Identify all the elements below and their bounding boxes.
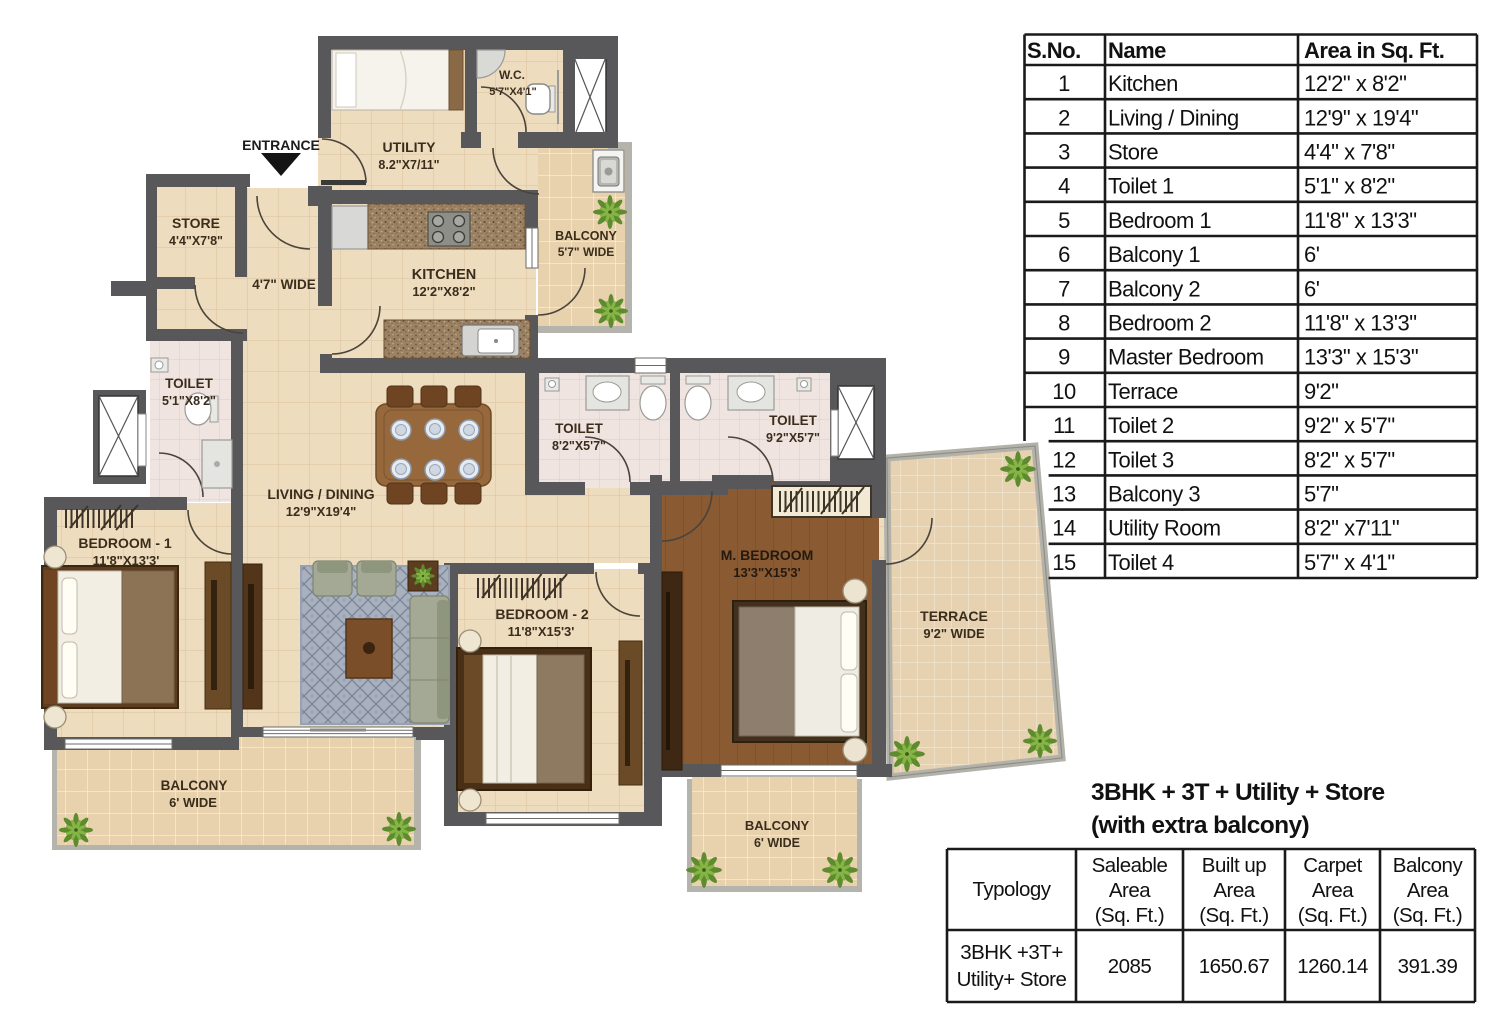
svg-text:11: 11 <box>1053 413 1075 438</box>
svg-text:Balcony 2: Balcony 2 <box>1108 276 1200 301</box>
svg-text:Toilet 2: Toilet 2 <box>1108 413 1174 438</box>
svg-text:9'2" WIDE: 9'2" WIDE <box>923 626 985 641</box>
svg-text:(Sq. Ft.): (Sq. Ft.) <box>1199 904 1269 927</box>
svg-text:STORE: STORE <box>172 215 220 231</box>
svg-text:UTILITY: UTILITY <box>383 139 437 155</box>
svg-text:13: 13 <box>1052 482 1076 507</box>
svg-text:1650.67: 1650.67 <box>1199 955 1270 978</box>
svg-text:6': 6' <box>1304 276 1320 301</box>
svg-text:(with extra balcony): (with extra balcony) <box>1091 812 1309 839</box>
svg-text:9: 9 <box>1058 345 1070 370</box>
svg-text:9'2" x 5'7": 9'2" x 5'7" <box>1304 413 1395 438</box>
svg-text:12'2"X8'2": 12'2"X8'2" <box>412 284 475 299</box>
svg-text:Carpet: Carpet <box>1303 854 1362 877</box>
svg-text:6': 6' <box>1304 242 1320 267</box>
svg-text:Kitchen: Kitchen <box>1108 71 1178 96</box>
svg-text:Master Bedroom: Master Bedroom <box>1108 345 1264 370</box>
svg-text:5'1"X8'2": 5'1"X8'2" <box>162 394 216 408</box>
svg-text:(Sq. Ft.): (Sq. Ft.) <box>1095 904 1165 927</box>
svg-text:10: 10 <box>1052 379 1076 404</box>
svg-text:BALCONY: BALCONY <box>745 818 810 833</box>
svg-text:4: 4 <box>1058 174 1070 199</box>
svg-text:Balcony 1: Balcony 1 <box>1108 242 1200 267</box>
svg-text:7: 7 <box>1058 276 1070 301</box>
svg-text:Terrace: Terrace <box>1108 379 1178 404</box>
svg-text:9'2": 9'2" <box>1304 379 1338 404</box>
svg-text:Typology: Typology <box>972 878 1051 901</box>
svg-text:6' WIDE: 6' WIDE <box>754 836 800 850</box>
svg-text:(Sq. Ft.): (Sq. Ft.) <box>1393 904 1463 927</box>
svg-text:9'2"X5'7": 9'2"X5'7" <box>766 431 820 445</box>
svg-text:11'8"X15'3': 11'8"X15'3' <box>508 624 575 639</box>
svg-text:BALCONY: BALCONY <box>161 778 228 793</box>
svg-text:11'8" x 13'3": 11'8" x 13'3" <box>1304 208 1417 233</box>
svg-text:M. BEDROOM: M. BEDROOM <box>721 547 814 563</box>
svg-text:12'9"X19'4": 12'9"X19'4" <box>286 504 357 519</box>
svg-text:2085: 2085 <box>1108 955 1152 978</box>
svg-text:5'7" WIDE: 5'7" WIDE <box>558 245 615 259</box>
svg-text:Toilet 3: Toilet 3 <box>1108 447 1174 472</box>
svg-text:Area in Sq. Ft.: Area in Sq. Ft. <box>1304 38 1444 63</box>
svg-text:13'3"X15'3': 13'3"X15'3' <box>733 565 801 580</box>
svg-text:14: 14 <box>1052 516 1076 541</box>
svg-text:Area: Area <box>1312 879 1354 902</box>
svg-text:6' WIDE: 6' WIDE <box>169 795 217 810</box>
svg-text:Area: Area <box>1407 879 1449 902</box>
svg-text:8: 8 <box>1058 311 1070 336</box>
svg-text:5'7" x 4'1": 5'7" x 4'1" <box>1304 550 1395 575</box>
svg-text:TOILET: TOILET <box>769 413 818 428</box>
svg-text:S.No.: S.No. <box>1027 38 1081 63</box>
svg-text:13'3" x 15'3": 13'3" x 15'3" <box>1304 345 1418 370</box>
svg-text:Balcony 3: Balcony 3 <box>1108 482 1200 507</box>
svg-text:TERRACE: TERRACE <box>920 608 988 624</box>
svg-text:2: 2 <box>1058 105 1070 130</box>
svg-text:KITCHEN: KITCHEN <box>412 267 476 283</box>
svg-text:TOILET: TOILET <box>165 376 214 391</box>
svg-text:Living / Dining: Living / Dining <box>1108 105 1239 130</box>
svg-text:15: 15 <box>1052 550 1076 575</box>
svg-text:BALCONY: BALCONY <box>555 229 617 243</box>
svg-text:8.2"X7/11": 8.2"X7/11" <box>378 158 439 172</box>
svg-text:Area: Area <box>1109 879 1151 902</box>
svg-text:1260.14: 1260.14 <box>1297 955 1368 978</box>
svg-text:4'4" x 7'8": 4'4" x 7'8" <box>1304 140 1395 165</box>
svg-text:BEDROOM - 1: BEDROOM - 1 <box>78 535 172 551</box>
svg-text:Balcony: Balcony <box>1393 854 1464 877</box>
svg-text:Store: Store <box>1108 140 1158 165</box>
svg-text:ENTRANCE: ENTRANCE <box>242 137 320 153</box>
svg-text:Toilet 4: Toilet 4 <box>1108 550 1174 575</box>
svg-text:6: 6 <box>1058 242 1070 267</box>
svg-text:Utility Room: Utility Room <box>1108 516 1221 541</box>
svg-text:Utility+ Store: Utility+ Store <box>957 968 1067 991</box>
svg-text:4'4"X7'8": 4'4"X7'8" <box>169 234 223 248</box>
svg-text:Bedroom 1: Bedroom 1 <box>1108 208 1211 233</box>
svg-text:12'2" x 8'2": 12'2" x 8'2" <box>1304 71 1406 96</box>
svg-text:5'7": 5'7" <box>1304 482 1338 507</box>
svg-text:LIVING / DINING: LIVING / DINING <box>267 486 374 502</box>
svg-text:11'8" x 13'3": 11'8" x 13'3" <box>1304 311 1417 336</box>
svg-text:5'7"X4'1": 5'7"X4'1" <box>489 86 536 98</box>
svg-text:8'2"X5'7": 8'2"X5'7" <box>552 439 606 453</box>
svg-text:Built up: Built up <box>1202 854 1266 877</box>
svg-text:(Sq. Ft.): (Sq. Ft.) <box>1298 904 1368 927</box>
svg-text:TOILET: TOILET <box>555 421 604 436</box>
svg-text:5: 5 <box>1058 208 1070 233</box>
svg-text:8'2" x7'11": 8'2" x7'11" <box>1304 516 1399 541</box>
svg-text:12: 12 <box>1052 447 1076 472</box>
svg-text:1: 1 <box>1058 71 1070 96</box>
svg-text:W.C.: W.C. <box>499 68 525 82</box>
svg-text:Toilet 1: Toilet 1 <box>1108 174 1174 199</box>
svg-text:3: 3 <box>1058 140 1070 165</box>
svg-text:4'7" WIDE: 4'7" WIDE <box>252 277 316 292</box>
svg-text:Name: Name <box>1108 38 1166 63</box>
svg-text:11'8"X13'3': 11'8"X13'3' <box>93 553 160 568</box>
svg-text:391.39: 391.39 <box>1398 955 1458 978</box>
svg-text:3BHK +3T+: 3BHK +3T+ <box>960 941 1063 964</box>
svg-text:Saleable: Saleable <box>1092 854 1168 877</box>
svg-text:12'9" x 19'4": 12'9" x 19'4" <box>1304 105 1418 130</box>
svg-text:3BHK + 3T + Utility + Store: 3BHK + 3T + Utility + Store <box>1091 779 1385 806</box>
svg-text:8'2" x 5'7": 8'2" x 5'7" <box>1304 447 1395 472</box>
svg-text:Bedroom 2: Bedroom 2 <box>1108 311 1211 336</box>
svg-text:Area: Area <box>1213 879 1255 902</box>
svg-text:5'1" x 8'2": 5'1" x 8'2" <box>1304 174 1395 199</box>
svg-text:BEDROOM - 2: BEDROOM - 2 <box>495 606 589 622</box>
